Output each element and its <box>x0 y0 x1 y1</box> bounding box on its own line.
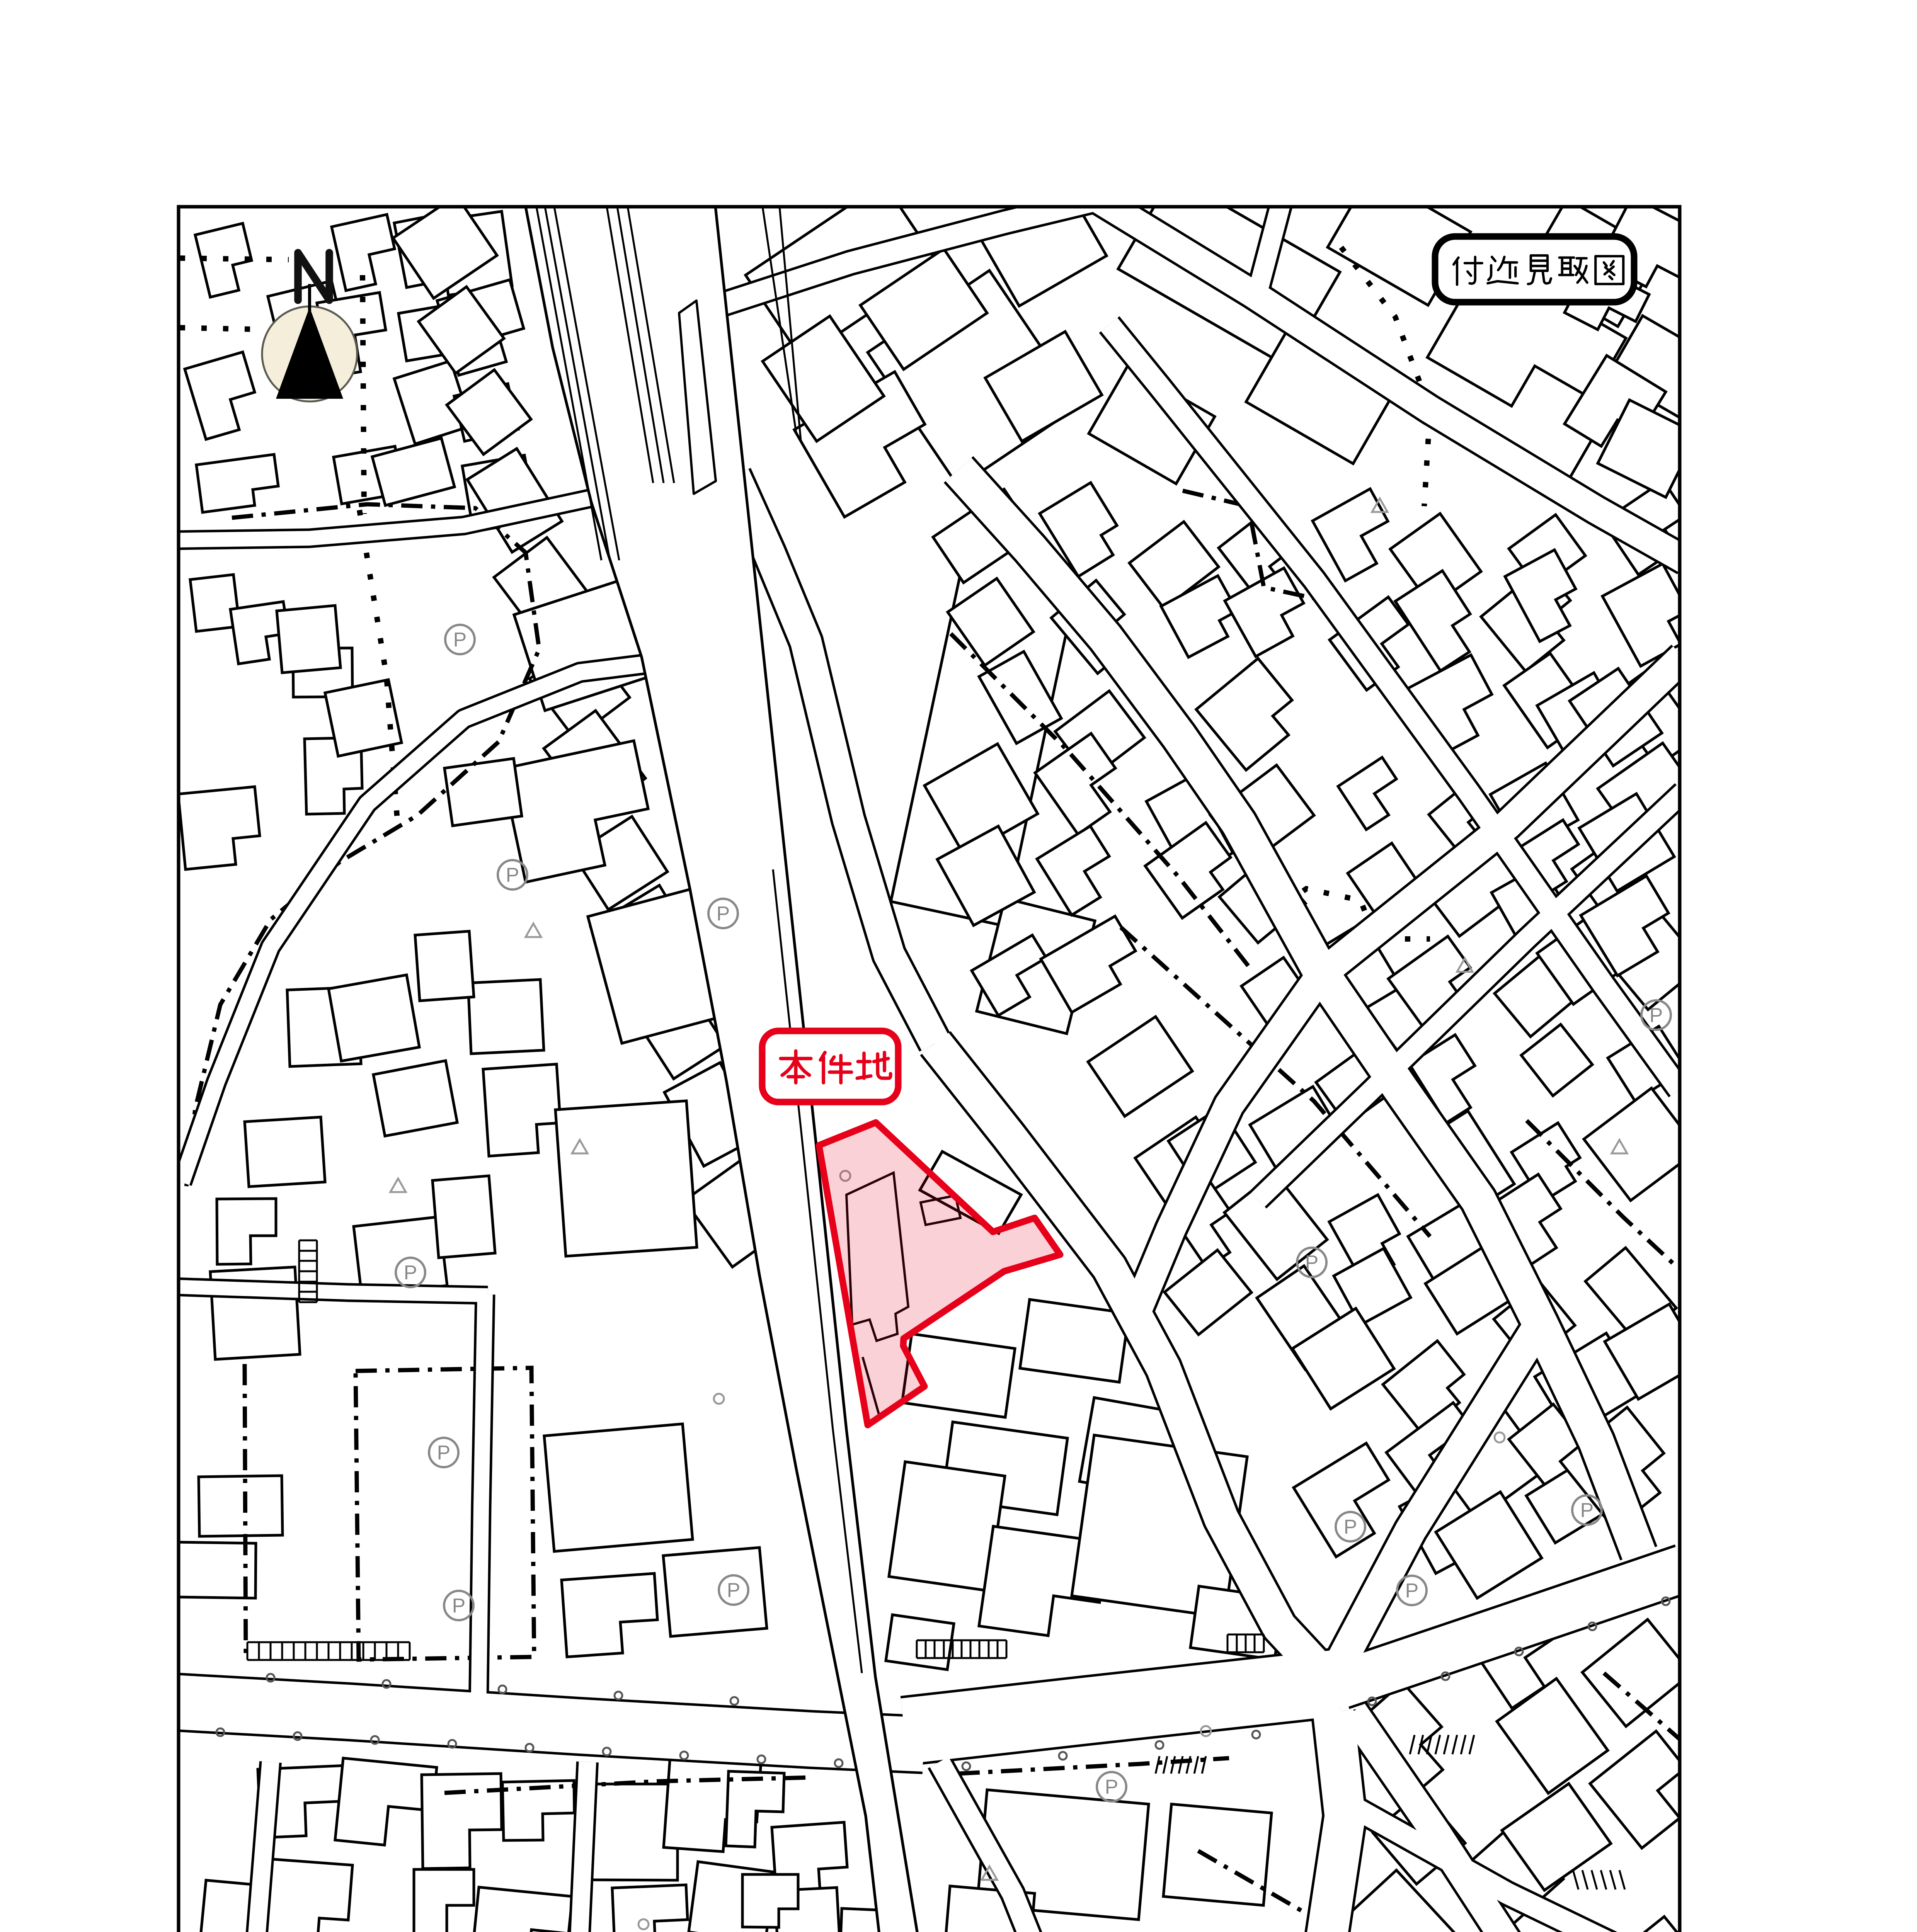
svg-text:P: P <box>1650 1004 1663 1027</box>
svg-text:P: P <box>453 629 467 651</box>
svg-text:P: P <box>727 1579 741 1602</box>
svg-text:P: P <box>1105 1776 1119 1798</box>
svg-text:P: P <box>452 1595 466 1617</box>
svg-text:P: P <box>1580 1499 1594 1522</box>
svg-text:P: P <box>1405 1580 1419 1602</box>
svg-text:P: P <box>437 1442 451 1464</box>
svg-text:P: P <box>404 1262 417 1284</box>
svg-text:P: P <box>506 864 519 886</box>
svg-text:P: P <box>1305 1252 1319 1274</box>
svg-text:P: P <box>717 903 730 925</box>
svg-text:P: P <box>1344 1516 1357 1538</box>
